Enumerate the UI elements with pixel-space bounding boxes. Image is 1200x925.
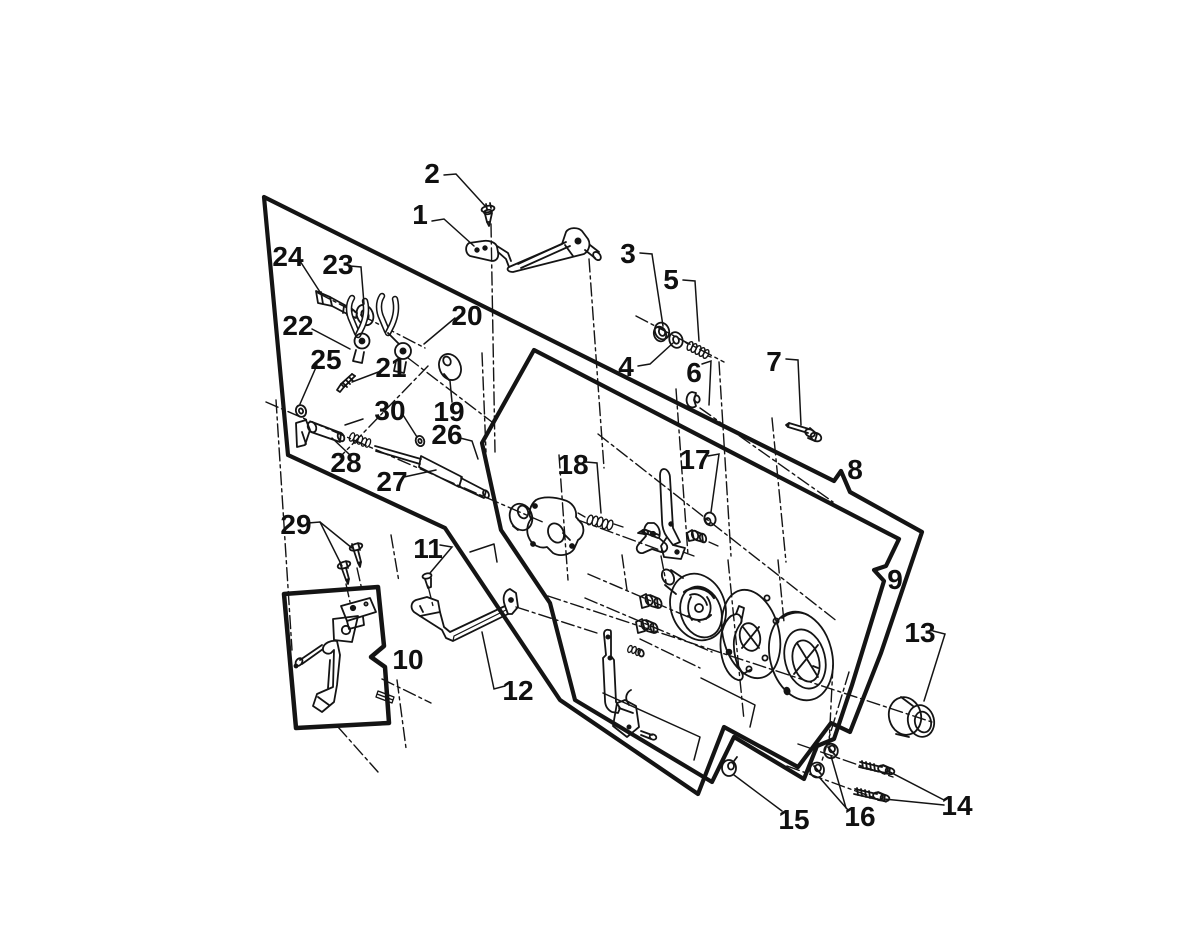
svg-text:24: 24 (272, 241, 304, 272)
svg-text:1: 1 (412, 199, 428, 230)
svg-text:9: 9 (887, 564, 903, 595)
svg-text:17: 17 (679, 444, 710, 475)
svg-text:5: 5 (663, 264, 679, 295)
svg-text:27: 27 (376, 466, 407, 497)
svg-text:16: 16 (844, 801, 875, 832)
svg-text:29: 29 (280, 509, 311, 540)
svg-text:15: 15 (778, 804, 809, 835)
svg-text:10: 10 (392, 644, 423, 675)
svg-text:3: 3 (620, 238, 636, 269)
svg-text:12: 12 (502, 675, 533, 706)
svg-text:4: 4 (618, 351, 634, 382)
svg-text:20: 20 (451, 300, 482, 331)
svg-text:26: 26 (431, 419, 462, 450)
svg-text:28: 28 (330, 447, 361, 478)
svg-text:21: 21 (375, 352, 406, 383)
svg-text:25: 25 (310, 344, 341, 375)
svg-text:2: 2 (424, 158, 440, 189)
svg-text:23: 23 (322, 249, 353, 280)
svg-text:8: 8 (847, 454, 863, 485)
svg-text:14: 14 (941, 790, 973, 821)
svg-text:22: 22 (282, 310, 313, 341)
svg-text:13: 13 (904, 617, 935, 648)
svg-text:7: 7 (766, 346, 782, 377)
svg-text:30: 30 (374, 395, 405, 426)
svg-text:11: 11 (413, 533, 443, 564)
svg-text:18: 18 (557, 449, 588, 480)
svg-text:6: 6 (686, 357, 702, 388)
